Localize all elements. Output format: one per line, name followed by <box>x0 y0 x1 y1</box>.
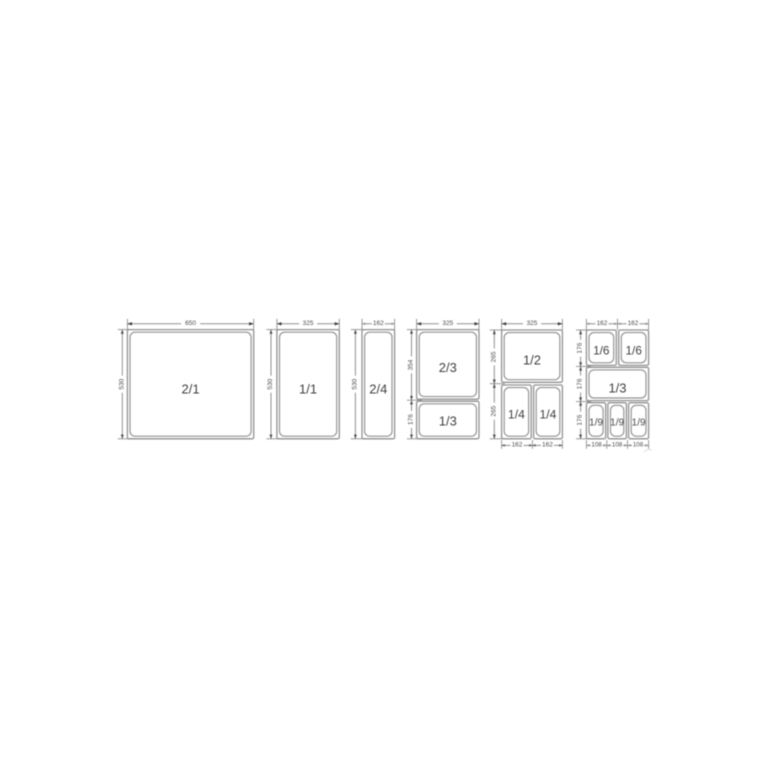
svg-text:1/3: 1/3 <box>439 414 457 429</box>
svg-text:1/9: 1/9 <box>589 418 603 429</box>
svg-text:2/4: 2/4 <box>369 381 387 396</box>
svg-text:162: 162 <box>373 320 384 327</box>
svg-text:108: 108 <box>633 442 644 449</box>
svg-text:1/1: 1/1 <box>299 381 317 396</box>
svg-text:176: 176 <box>577 414 584 425</box>
svg-text:1/6: 1/6 <box>625 344 642 358</box>
svg-text:1/6: 1/6 <box>593 344 610 358</box>
svg-text:1/3: 1/3 <box>608 381 626 396</box>
svg-text:650: 650 <box>185 320 196 327</box>
svg-text:162: 162 <box>597 320 608 327</box>
svg-text:265: 265 <box>490 405 497 416</box>
svg-text:325: 325 <box>442 320 453 327</box>
svg-text:1/2: 1/2 <box>523 353 541 368</box>
svg-text:108: 108 <box>591 442 602 449</box>
svg-text:530: 530 <box>267 378 274 389</box>
svg-text:176: 176 <box>577 378 584 389</box>
svg-text:530: 530 <box>118 378 125 389</box>
svg-text:176: 176 <box>408 414 415 425</box>
svg-text:354: 354 <box>408 359 415 370</box>
svg-text:325: 325 <box>303 320 314 327</box>
svg-text:162: 162 <box>628 320 639 327</box>
svg-text:1/4: 1/4 <box>540 407 557 421</box>
svg-text:1/9: 1/9 <box>632 418 646 429</box>
svg-text:162: 162 <box>542 442 553 449</box>
svg-text:2/1: 2/1 <box>182 381 200 396</box>
svg-text:2/3: 2/3 <box>439 360 457 375</box>
svg-text:108: 108 <box>612 442 623 449</box>
svg-text:162: 162 <box>512 442 523 449</box>
svg-text:265: 265 <box>490 351 497 362</box>
svg-text:530: 530 <box>352 378 359 389</box>
svg-text:1/4: 1/4 <box>508 407 525 421</box>
svg-text:325: 325 <box>527 320 538 327</box>
svg-text:176: 176 <box>577 342 584 353</box>
svg-text:1/9: 1/9 <box>610 418 624 429</box>
